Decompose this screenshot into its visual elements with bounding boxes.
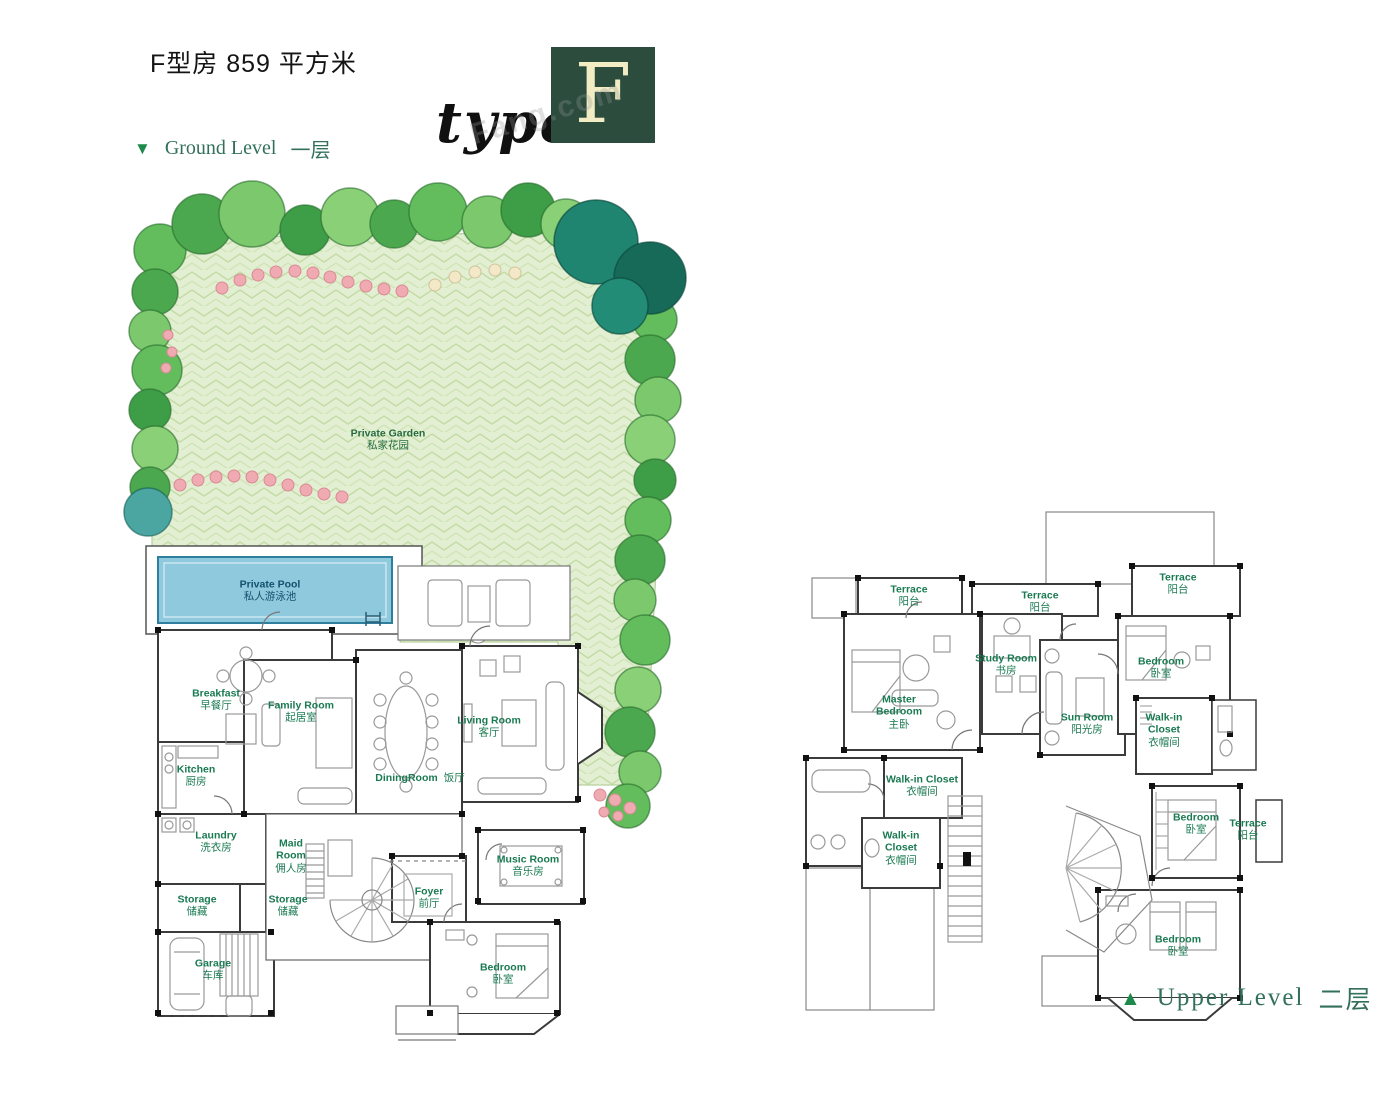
room-label-study-room: Study Room书房 — [961, 653, 1051, 678]
up-triangle-icon: ▲ — [1120, 986, 1143, 1011]
room-label-bedroom-top-right: Bedroom卧室 — [1138, 656, 1184, 681]
room-label-storage-1: Storage储藏 — [177, 894, 216, 919]
room-label-terrace-top-right: Terrace阳台 — [1159, 572, 1196, 597]
floor-plan-page: F型房 859 平方米 type F Fang.com ▼ Ground Lev… — [0, 0, 1400, 1120]
room-label-private-garden: Private Garden私家花园 — [351, 428, 426, 453]
room-label-terrace-mid-right: Terrace阳台 — [1225, 818, 1271, 843]
room-label-bedroom-bottom: Bedroom卧室 — [1155, 934, 1201, 959]
room-label-kitchen: Kitchen厨房 — [177, 764, 216, 789]
room-label-storage-2: Storage储藏 — [268, 894, 307, 919]
room-label-foyer: Foyer前厅 — [415, 886, 444, 911]
teal-tree — [124, 488, 172, 536]
ground-level-label: ▼ Ground Level 一层 — [134, 134, 330, 163]
room-label-laundry: Laundry洗衣房 — [195, 830, 236, 855]
upper-level-label: ▲ Upper Level 二层 — [1120, 980, 1372, 1016]
room-label-garage: Garage车库 — [195, 958, 231, 983]
upper-plan-walls — [806, 512, 1282, 1020]
room-label-master-bedroom: Master Bedroom主卧 — [870, 693, 928, 730]
room-label-walkin-closet-low: Walk-in Closet衣帽间 — [876, 829, 926, 866]
room-label-bedroom-ground: Bedroom卧室 — [480, 962, 526, 987]
room-label-walkin-closet-right: Walk-in Closet衣帽间 — [1139, 711, 1189, 748]
room-label-breakfast: Breakfast早餐厅 — [192, 688, 240, 713]
upper-level-en: Upper Level — [1157, 984, 1305, 1012]
room-label-bedroom-mid-right: Bedroom卧室 — [1173, 812, 1219, 837]
room-label-private-pool: Private Pool私人游泳池 — [240, 579, 301, 604]
room-label-terrace-top-center: Terrace阳台 — [1021, 590, 1058, 615]
room-label-family-room: Family Room起居室 — [259, 700, 343, 725]
room-label-music-room: Music Room音乐房 — [483, 854, 573, 879]
down-triangle-icon: ▼ — [134, 139, 151, 159]
room-label-maid-room: Maid Room佣人房 — [269, 837, 313, 874]
upper-level-zh: 二层 — [1318, 980, 1372, 1016]
room-label-dining-room: DiningRoom饭厅 — [375, 772, 464, 784]
room-label-sun-room: Sun Room阳光房 — [1050, 712, 1124, 737]
room-label-terrace-top-left: Terrace阳台 — [890, 584, 927, 609]
ground-level-en: Ground Level — [165, 137, 277, 160]
room-label-walkin-closet-mid: Walk-in Closet衣帽间 — [867, 774, 977, 799]
room-label-living-room: Living Room客厅 — [447, 715, 531, 740]
page-title: F型房 859 平方米 — [150, 44, 357, 80]
ground-level-zh: 一层 — [290, 134, 330, 163]
